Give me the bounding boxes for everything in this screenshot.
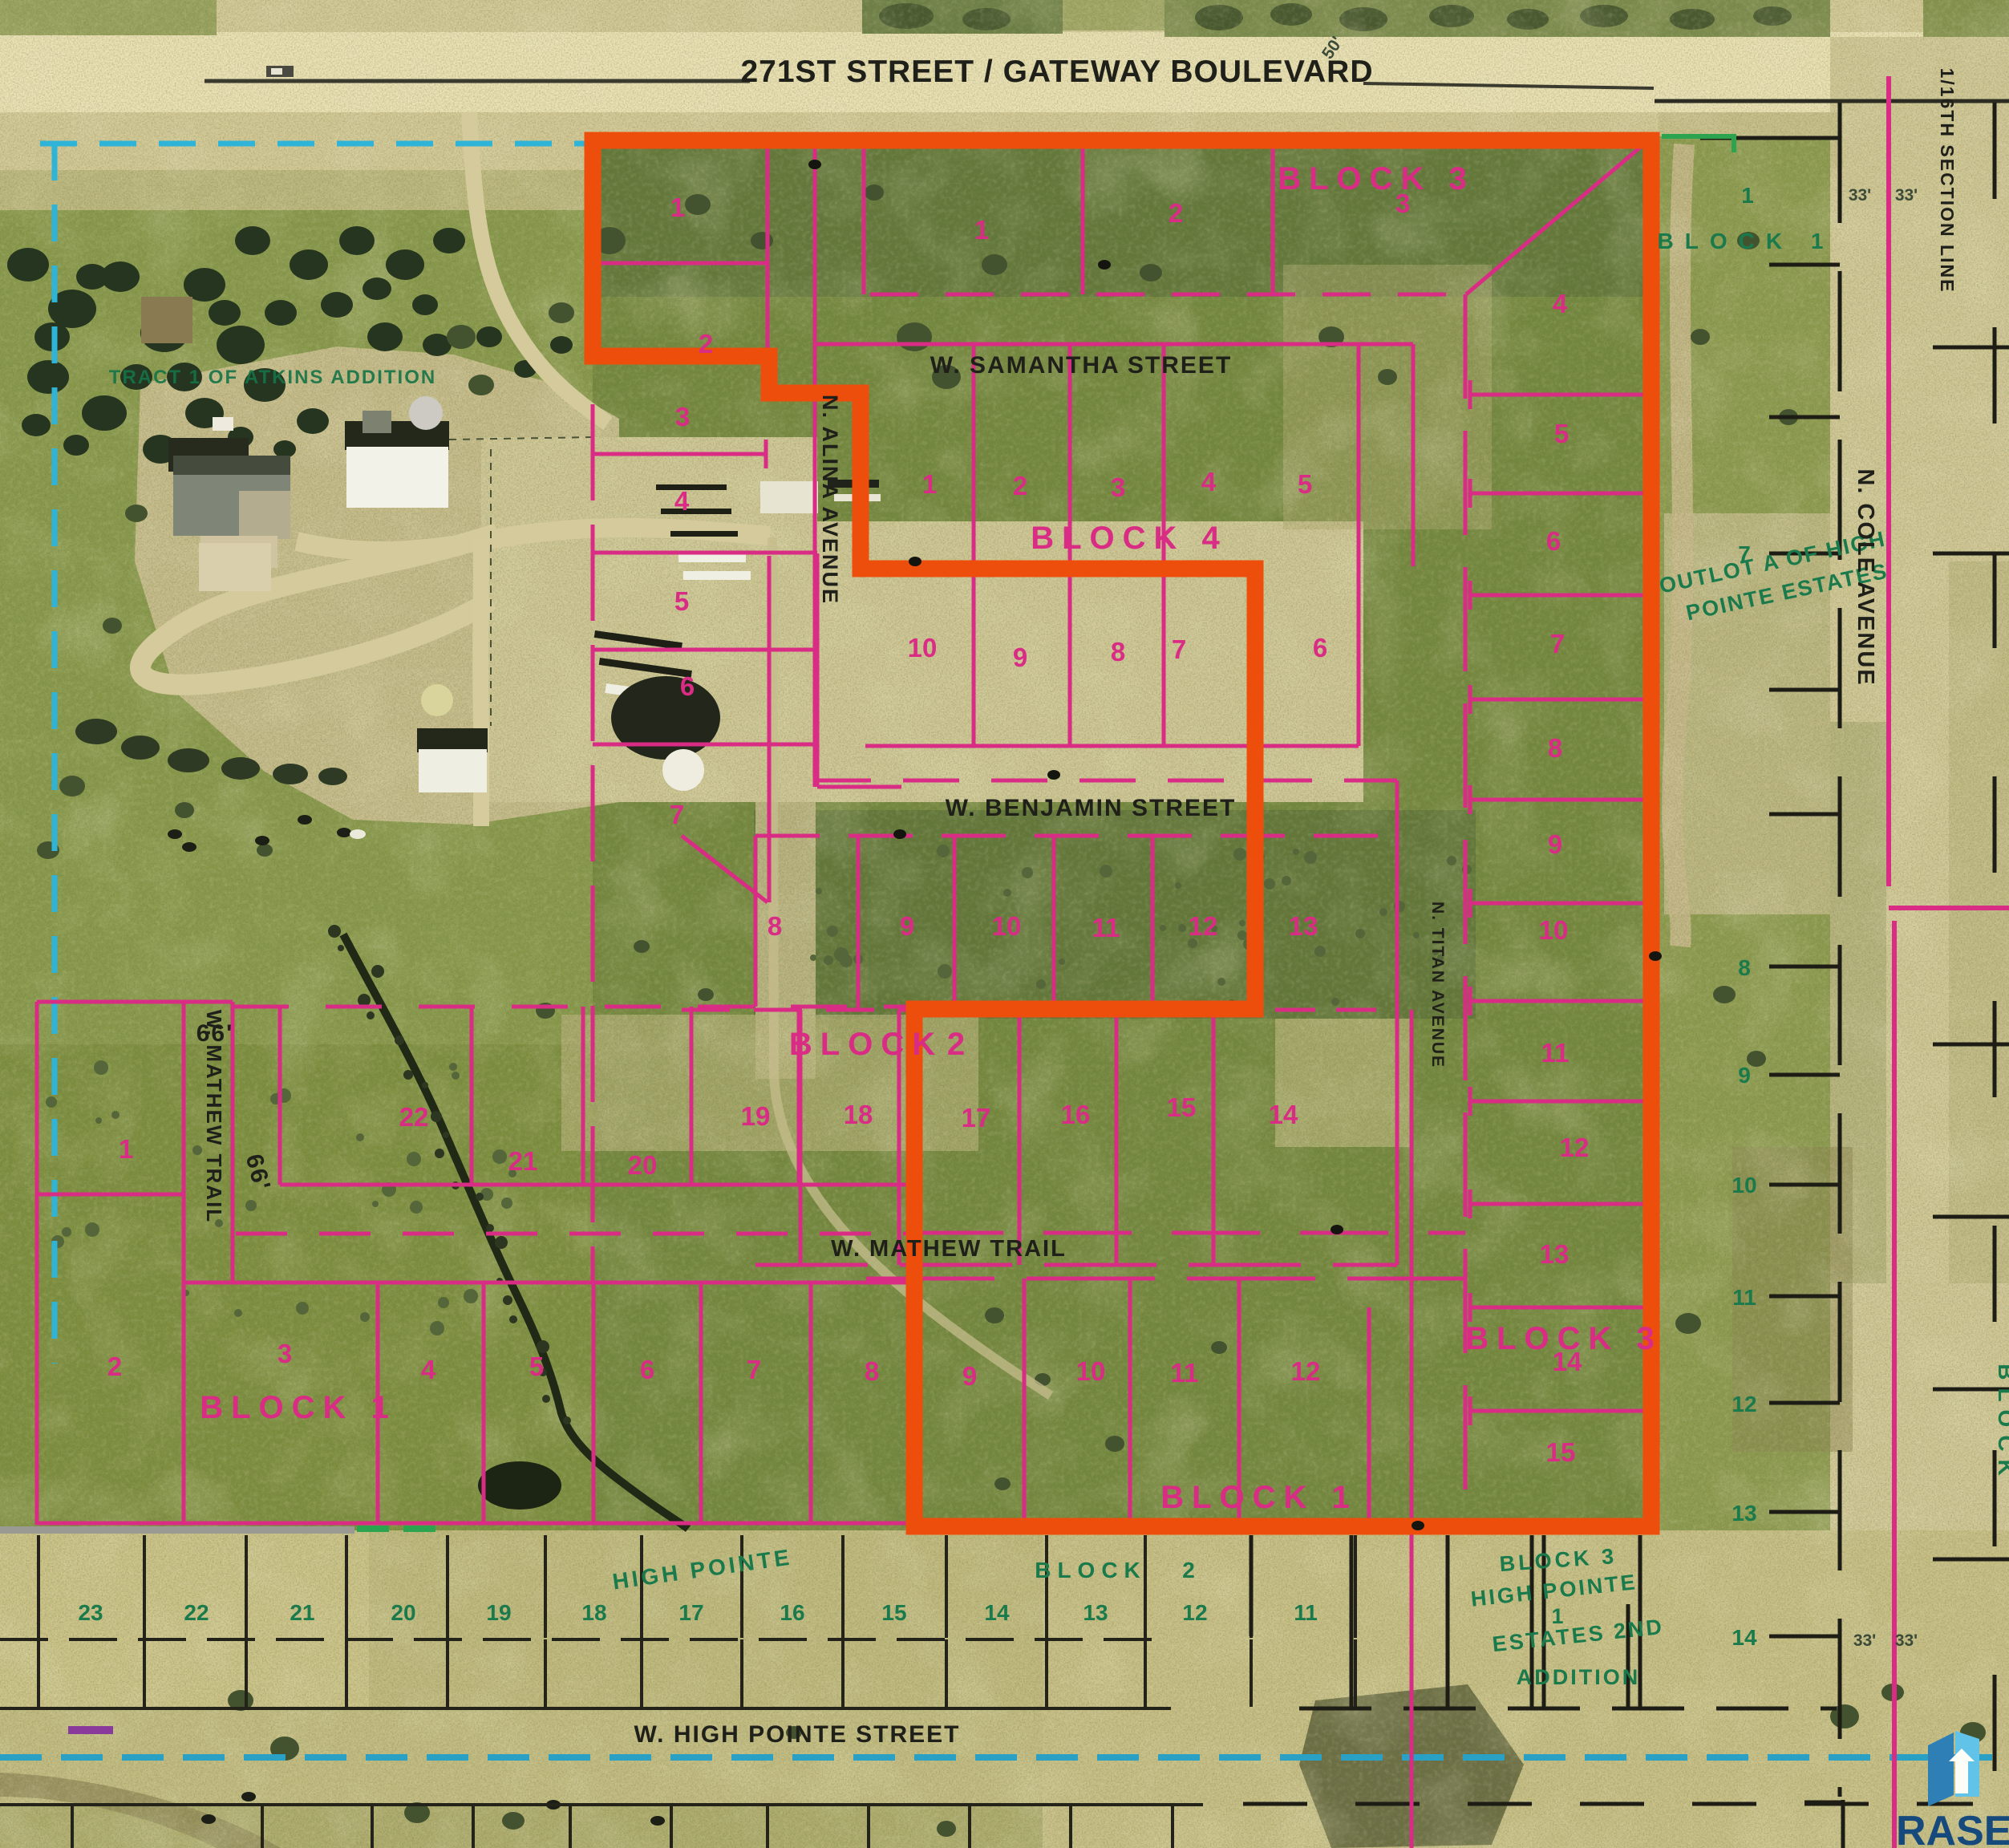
svg-text:5: 5 xyxy=(1554,419,1569,448)
svg-text:BLOCK: BLOCK xyxy=(1035,1558,1147,1583)
svg-text:8: 8 xyxy=(865,1356,879,1386)
svg-text:13: 13 xyxy=(1540,1239,1570,1269)
svg-text:4: 4 xyxy=(674,486,690,516)
svg-text:6: 6 xyxy=(640,1355,654,1384)
svg-text:3: 3 xyxy=(1111,472,1125,502)
svg-text:4: 4 xyxy=(1201,467,1217,496)
svg-text:9: 9 xyxy=(1548,829,1562,859)
svg-text:11: 11 xyxy=(1732,1285,1756,1310)
svg-text:15: 15 xyxy=(1167,1092,1197,1122)
svg-text:2: 2 xyxy=(699,329,713,359)
svg-text:17: 17 xyxy=(962,1103,991,1133)
svg-text:1: 1 xyxy=(670,192,685,222)
svg-text:21: 21 xyxy=(508,1146,538,1176)
svg-text:14: 14 xyxy=(984,1600,1010,1625)
svg-text:9: 9 xyxy=(900,911,914,941)
svg-text:BLOCK 3: BLOCK 3 xyxy=(1278,161,1475,197)
svg-text:13: 13 xyxy=(1083,1600,1108,1625)
svg-text:18: 18 xyxy=(844,1100,873,1129)
svg-text:11: 11 xyxy=(1294,1600,1318,1625)
svg-text:BLOCK 1: BLOCK 1 xyxy=(1658,229,1835,253)
svg-text:8: 8 xyxy=(768,911,782,941)
svg-text:13: 13 xyxy=(1732,1501,1756,1526)
svg-text:33': 33' xyxy=(1853,1631,1876,1650)
svg-text:12: 12 xyxy=(1291,1356,1321,1386)
svg-text:10: 10 xyxy=(1539,915,1569,945)
svg-text:12: 12 xyxy=(1560,1133,1590,1162)
svg-text:2: 2 xyxy=(107,1352,122,1381)
svg-text:17: 17 xyxy=(678,1600,703,1625)
svg-text:1: 1 xyxy=(119,1134,133,1164)
svg-text:1: 1 xyxy=(922,469,937,499)
svg-text:BLOCK 3: BLOCK 3 xyxy=(1465,1321,1663,1356)
svg-text:3: 3 xyxy=(675,402,690,432)
svg-text:66': 66' xyxy=(196,1020,234,1047)
svg-text:33': 33' xyxy=(1895,186,1918,205)
svg-text:16: 16 xyxy=(780,1600,804,1625)
svg-text:4: 4 xyxy=(1553,289,1568,318)
svg-text:8: 8 xyxy=(1738,955,1751,980)
svg-text:10: 10 xyxy=(1076,1356,1106,1386)
svg-text:18: 18 xyxy=(581,1600,606,1625)
svg-text:W. MATHEW TRAIL: W. MATHEW TRAIL xyxy=(831,1236,1067,1262)
svg-text:16: 16 xyxy=(1061,1100,1091,1129)
svg-text:11: 11 xyxy=(1092,913,1120,942)
svg-text:ADDITION: ADDITION xyxy=(1517,1665,1641,1689)
svg-text:15: 15 xyxy=(881,1600,906,1625)
svg-text:TRACT 1 OF ATKINS ADDITION: TRACT 1 OF ATKINS ADDITION xyxy=(109,367,436,388)
svg-text:8: 8 xyxy=(1548,733,1562,763)
svg-text:9: 9 xyxy=(1013,642,1027,672)
svg-text:BLOCK 1: BLOCK 1 xyxy=(1160,1480,1358,1515)
svg-text:2: 2 xyxy=(947,1027,965,1062)
svg-text:13: 13 xyxy=(1289,911,1318,941)
svg-text:7: 7 xyxy=(747,1355,761,1384)
svg-text:1/16TH SECTION LINE: 1/16TH SECTION LINE xyxy=(1937,68,1958,294)
svg-text:5: 5 xyxy=(529,1352,544,1381)
svg-text:2: 2 xyxy=(1169,198,1183,228)
svg-text:8: 8 xyxy=(1111,637,1125,667)
svg-text:33': 33' xyxy=(1849,186,1871,205)
svg-text:BLOCK: BLOCK xyxy=(789,1027,943,1062)
svg-text:1: 1 xyxy=(974,215,989,245)
svg-text:2: 2 xyxy=(1013,471,1027,500)
svg-text:21: 21 xyxy=(290,1600,314,1625)
svg-text:BLOCK 1: BLOCK 1 xyxy=(200,1390,397,1425)
svg-text:7: 7 xyxy=(1738,541,1751,566)
svg-text:12: 12 xyxy=(1182,1600,1207,1625)
svg-text:22: 22 xyxy=(399,1102,429,1132)
svg-text:3: 3 xyxy=(277,1339,292,1368)
svg-text:RASE: RASE xyxy=(1896,1808,2009,1848)
svg-text:10: 10 xyxy=(908,633,938,663)
svg-text:BLOCK 4: BLOCK 4 xyxy=(1031,521,1228,556)
svg-text:7: 7 xyxy=(1550,629,1565,659)
svg-text:2: 2 xyxy=(1182,1558,1195,1583)
svg-text:20: 20 xyxy=(628,1150,658,1180)
svg-text:271ST STREET / GATEWAY BOULEVA: 271ST STREET / GATEWAY BOULEVARD xyxy=(740,55,1373,89)
svg-text:5: 5 xyxy=(674,586,689,616)
svg-text:9: 9 xyxy=(962,1361,977,1391)
svg-text:1: 1 xyxy=(1741,183,1754,208)
svg-text:10: 10 xyxy=(1732,1173,1756,1198)
svg-text:20: 20 xyxy=(391,1600,415,1625)
svg-text:N. TITAN AVENUE: N. TITAN AVENUE xyxy=(1428,902,1447,1068)
svg-text:4: 4 xyxy=(421,1355,436,1384)
svg-text:W. SAMANTHA STREET: W. SAMANTHA STREET xyxy=(930,352,1233,379)
svg-text:BLOCK: BLOCK xyxy=(1994,1364,2009,1484)
svg-text:7: 7 xyxy=(670,800,684,829)
svg-text:5: 5 xyxy=(1298,469,1312,499)
svg-text:23: 23 xyxy=(78,1600,103,1625)
svg-text:6: 6 xyxy=(1313,633,1327,663)
svg-text:14: 14 xyxy=(1732,1625,1757,1650)
svg-text:W. HIGH POINTE STREET: W. HIGH POINTE STREET xyxy=(634,1721,960,1748)
svg-text:11: 11 xyxy=(1171,1358,1199,1388)
svg-text:W. BENJAMIN STREET: W. BENJAMIN STREET xyxy=(946,795,1237,821)
svg-text:9: 9 xyxy=(1738,1063,1751,1088)
svg-text:N. ALINA AVENUE: N. ALINA AVENUE xyxy=(818,395,842,605)
svg-text:11: 11 xyxy=(1541,1038,1570,1068)
svg-text:14: 14 xyxy=(1269,1100,1298,1129)
svg-text:7: 7 xyxy=(1172,634,1186,664)
svg-text:6: 6 xyxy=(680,671,695,701)
svg-text:N. COLE AVENUE: N. COLE AVENUE xyxy=(1853,468,1878,686)
svg-text:33': 33' xyxy=(1895,1631,1918,1650)
svg-text:15: 15 xyxy=(1546,1437,1576,1467)
svg-text:6: 6 xyxy=(1546,526,1561,556)
svg-text:12: 12 xyxy=(1732,1392,1756,1416)
svg-text:19: 19 xyxy=(741,1101,771,1131)
svg-text:22: 22 xyxy=(184,1600,209,1625)
svg-text:10: 10 xyxy=(992,911,1022,941)
svg-text:19: 19 xyxy=(486,1600,511,1625)
svg-text:12: 12 xyxy=(1189,911,1218,941)
